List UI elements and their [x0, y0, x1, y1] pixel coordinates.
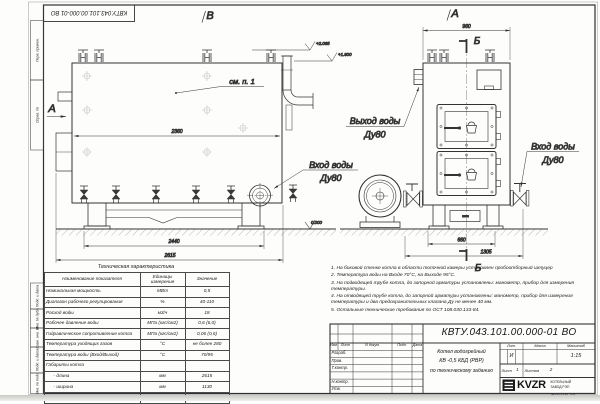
spec-cell: МВт	[140, 287, 185, 298]
spec-cell	[185, 361, 229, 372]
table-row: Температура воды (Вход/Выход)°С70/95	[44, 350, 229, 361]
tb-row-approved: Утв.	[332, 387, 341, 392]
kvzr-logo-text: KVZR	[517, 380, 546, 391]
see-note-text: см. п. 1	[229, 77, 255, 86]
spec-cell: 70/95	[185, 350, 229, 361]
door-handle-icon	[468, 169, 475, 172]
drain-valve-icon	[80, 186, 88, 203]
technical-notes: 1. На боковой стенке котла в области топ…	[331, 266, 596, 315]
spec-cell: Температура уходящих газов	[44, 339, 140, 350]
table-row: Рабочее давление водыМПа (кгс/см2)0,6 (6…	[44, 318, 229, 329]
air-valve-icon	[94, 50, 104, 62]
lug-marks	[82, 71, 248, 157]
spec-col-units: Единицы измерения	[140, 273, 185, 287]
inlet-dn-label: Ду80	[320, 173, 342, 183]
dim-text: 2440	[167, 239, 179, 245]
inlet-dn-label: Ду80	[542, 155, 564, 165]
table-row: Номинальная мощностьМВт0,5	[44, 287, 229, 298]
dim-text: 960	[462, 24, 471, 30]
elev-text: +2.065	[316, 41, 330, 46]
spec-cell: мм	[140, 382, 185, 393]
tb-row-tcontrol: Т.контр.	[332, 366, 349, 371]
spec-cell: %	[140, 297, 185, 308]
spec-cell: 2615	[185, 371, 229, 382]
spec-cell	[140, 361, 185, 372]
spec-cell: 40-110	[185, 297, 229, 308]
air-valve-icon	[202, 50, 212, 62]
inlet-label: Вход воды	[531, 142, 575, 152]
side-view: 2360 2440 2615 0.000 +2.065 +1.900	[47, 10, 358, 263]
spec-cell: 0,06 (0,6)	[185, 329, 229, 340]
panel-box	[477, 70, 501, 90]
section-label: Б	[474, 36, 481, 47]
drawing-sheet: Перв. примен. Справ. № Подп. и дата Инв.…	[0, 0, 600, 400]
table-row: Расход водым3/ч18	[44, 308, 229, 319]
drain-valve-icon	[192, 186, 200, 203]
table-row: - ширинамм1130	[44, 382, 229, 393]
spec-cell: Рабочее давление воды	[44, 318, 140, 329]
outlet-label: Выход воды	[350, 116, 401, 126]
lit-label: Лит.	[500, 344, 523, 348]
lower-door	[437, 152, 501, 196]
spec-table-title: Техническая характеристика	[44, 262, 229, 272]
note-line: 3. На подводящей трубе котла, до запорно…	[331, 281, 596, 293]
dim-text: 2360	[170, 129, 182, 135]
spec-cell: МПа (кгс/см2)	[140, 329, 185, 340]
dim-2615: 2615	[56, 173, 283, 263]
sheets-total: 2	[545, 368, 557, 373]
tb-row-checked: Пров.	[332, 359, 343, 364]
spec-cell: 1130	[185, 382, 229, 393]
outlet-callout: Выход воды Ду80	[346, 87, 419, 140]
table-row: Диапазон рабочего регулирования%40-110	[44, 297, 229, 308]
outlet-flange	[414, 70, 423, 85]
doc-number-box-top: КВТУ.043.101.00.000-01 ВО	[44, 5, 135, 22]
drain-valve-icon	[152, 186, 160, 203]
spec-cell: мм	[140, 371, 185, 382]
elevation-1900: +1.900	[294, 52, 352, 61]
drain-valve-icon	[289, 185, 297, 202]
spec-cell: °С	[140, 339, 185, 350]
spec-cell: 18	[185, 308, 229, 319]
tb-col-sign: Подп.	[392, 344, 412, 348]
spec-cell: Диапазон рабочего регулирования	[44, 297, 140, 308]
sheet-label: Лист	[502, 369, 512, 373]
spec-cell: - длина	[44, 371, 140, 382]
sheet-number: 1	[513, 368, 522, 373]
spec-cell: не более 280	[185, 339, 229, 350]
dim-text: 660	[457, 238, 466, 244]
margin-label: Перв. примен.	[36, 38, 40, 62]
dim-text: 2615	[163, 253, 175, 259]
margin-label: Взам. инв. №	[36, 326, 40, 348]
scale-label: Масштаб	[557, 344, 595, 348]
section-mark-top: Б	[459, 36, 481, 53]
spec-cell: МПа (кгс/см2)	[140, 318, 185, 329]
elevation-zero: 0.000	[305, 220, 323, 229]
elev-text: 0.000	[311, 220, 323, 225]
tb-row-developed: Разраб.	[332, 351, 347, 356]
air-valve-icon	[78, 50, 88, 62]
outlet-pipe-assembly	[281, 56, 313, 130]
view-arrow-A: А	[47, 103, 55, 115]
table-row: Температура уходящих газов°Сне более 280	[44, 339, 229, 350]
blower-fan	[359, 175, 401, 228]
scale-value: 1:15	[557, 353, 595, 359]
spec-cell: Расход воды	[44, 308, 140, 319]
spec-col-name: Наименование показателя	[44, 273, 140, 287]
air-valve-icon	[485, 50, 495, 62]
spec-cell: Температура воды (Вход/Выход)	[44, 350, 140, 361]
spec-cell: м3/ч	[140, 308, 185, 319]
spec-table: Техническая характеристика Наименование …	[44, 262, 229, 404]
elevation-2065: +2.065	[252, 41, 330, 50]
inlet-label: Вход воды	[309, 160, 353, 170]
product-title-line1: Котел водогрейный	[424, 350, 499, 356]
air-valve-icon	[439, 50, 449, 62]
upper-door	[437, 105, 501, 149]
dim-2360: 2360	[74, 129, 280, 136]
tb-col-date: Дата	[412, 344, 423, 348]
note-line: 1. На боковой стенке котла в области топ…	[331, 266, 596, 272]
mass-label: Масса	[523, 344, 557, 348]
margin-label: Справ. №	[36, 107, 40, 123]
spec-cell: 0,5	[185, 287, 229, 298]
tb-col-list: Лист	[338, 344, 353, 348]
product-title-line3: по техническому заданию	[424, 369, 499, 375]
air-valve-icon	[266, 50, 276, 62]
kvzr-logo-icon	[503, 380, 516, 392]
doc-number: КВТУ.043.101.00.000-01 ВО	[425, 327, 593, 338]
product-title-line2: КВ -0,5 КБД (РВР)	[424, 359, 499, 365]
door-handle-icon	[468, 122, 475, 126]
view-label-B: В	[206, 10, 213, 22]
tb-row-ncontrol: Н.контр.	[332, 380, 349, 385]
margin-labels: Перв. примен. Справ. № Подп. и дата Инв.…	[36, 38, 40, 394]
hinge-icon	[496, 181, 501, 187]
inlet-callout-front: Вход воды Ду80	[521, 142, 579, 188]
dim-text: 1305	[480, 250, 491, 256]
drain-valve-icon	[112, 186, 120, 203]
air-valve-icon	[427, 50, 437, 62]
spec-cell: - ширина	[44, 382, 140, 393]
elev-text: +1.900	[338, 52, 352, 57]
spec-cell: 0,6 (6,0)	[185, 318, 229, 329]
hinge-icon	[496, 134, 501, 140]
inlet-callout-side: Вход воды Ду80	[274, 160, 358, 189]
inlet-valve	[511, 184, 529, 207]
table-row: Гидравлическое сопротивление котлаМПа (к…	[44, 329, 229, 340]
sheets-label: Листов	[525, 369, 540, 373]
drain-valve-icon	[227, 186, 235, 203]
front-view: 960 А Б	[340, 8, 579, 274]
lit-value: И	[508, 353, 516, 359]
margin-label: Подп. и дата	[36, 349, 40, 372]
spec-cell: Габариты котла	[44, 361, 140, 372]
see-note-callout: см. п. 1	[175, 77, 264, 94]
spec-table-grid: Наименование показателя Единицы измерени…	[44, 272, 230, 404]
spec-cell: Номинальная мощность	[44, 287, 140, 298]
logo-caption-2: ЗАВОД РЭП	[551, 386, 570, 390]
spec-cell: Гидравлическое сопротивление котла	[44, 329, 140, 340]
outlet-dn-label: Ду80	[364, 130, 386, 140]
doc-number-rotated: КВТУ.043.101.00.000-01 ВО	[50, 9, 127, 15]
spec-cell: °С	[140, 350, 185, 361]
table-row: - длинамм2615	[44, 371, 229, 382]
note-line: 2. Температура воды на Входе 70°С, на Вы…	[331, 273, 596, 279]
table-row: Габариты котла	[44, 361, 229, 372]
note-line: 5. Остальные технические требования по О…	[331, 308, 596, 314]
view-label-A: А	[450, 8, 458, 20]
fan-duct-valve	[404, 184, 423, 207]
margin-label: Подп. и дата	[36, 285, 40, 308]
margin-label: Инв. № подл.	[36, 372, 40, 394]
tb-col-doc: N докум.	[353, 344, 392, 348]
spec-col-value: Значение	[185, 273, 229, 287]
margin-label: Инв. № дубл.	[36, 307, 40, 329]
hinge-icon	[496, 112, 501, 118]
note-line: 4. На отводящей трубе котла, до запорной…	[331, 294, 596, 306]
hinge-icon	[496, 159, 501, 165]
